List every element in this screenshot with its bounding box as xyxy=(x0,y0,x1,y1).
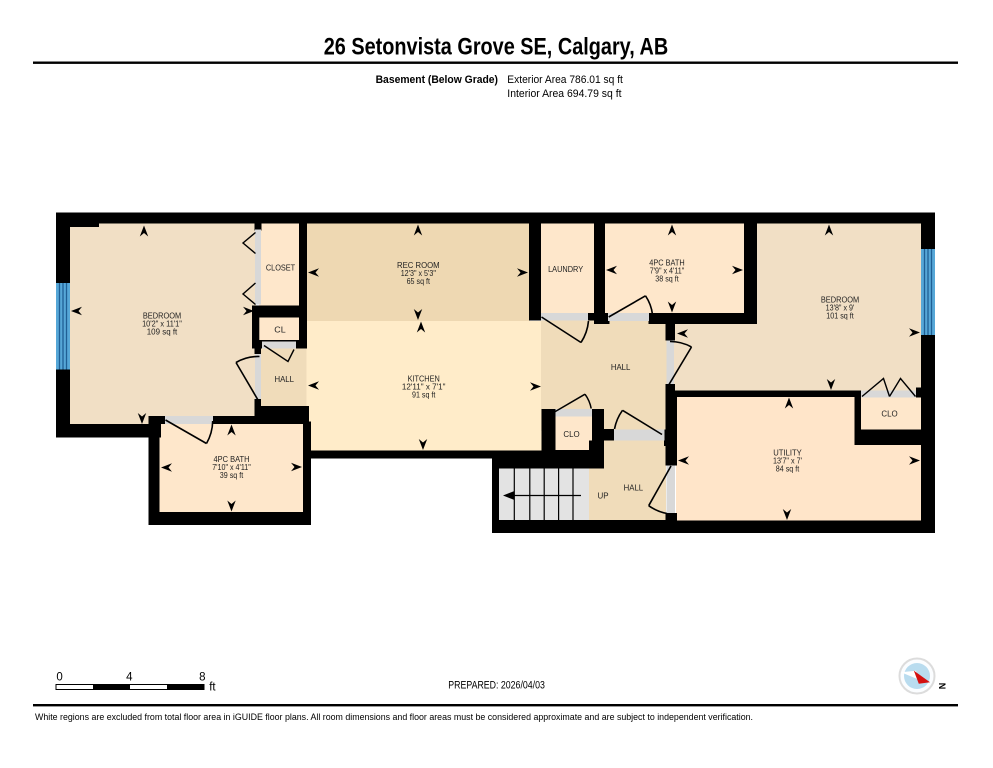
svg-text:CLOSET: CLOSET xyxy=(266,262,295,272)
svg-text:84 sq ft: 84 sq ft xyxy=(776,464,800,474)
svg-text:PREPARED: 2026/04/03: PREPARED: 2026/04/03 xyxy=(448,679,545,691)
svg-text:91 sq ft: 91 sq ft xyxy=(412,389,436,399)
svg-text:8: 8 xyxy=(199,672,205,684)
svg-text:26 Setonvista Grove SE, Calgar: 26 Setonvista Grove SE, Calgary, AB xyxy=(324,34,669,61)
svg-text:ft: ft xyxy=(209,682,216,694)
svg-text:65 sq ft: 65 sq ft xyxy=(407,276,431,286)
svg-text:101 sq ft: 101 sq ft xyxy=(826,311,854,321)
svg-text:109 sq ft: 109 sq ft xyxy=(147,326,178,336)
svg-text:CLO: CLO xyxy=(881,409,898,419)
svg-text:0: 0 xyxy=(56,672,62,684)
svg-text:Basement (Below Grade): Basement (Below Grade) xyxy=(376,74,499,86)
svg-text:HALL: HALL xyxy=(274,374,294,384)
svg-text:HALL: HALL xyxy=(624,483,644,493)
svg-text:Exterior Area 786.01 sq ft: Exterior Area 786.01 sq ft xyxy=(507,74,623,86)
svg-text:4: 4 xyxy=(126,672,133,684)
svg-text:CL: CL xyxy=(274,325,286,335)
svg-text:HALL: HALL xyxy=(611,362,631,372)
svg-text:White regions are excluded fro: White regions are excluded from total fl… xyxy=(35,712,753,722)
svg-text:39 sq ft: 39 sq ft xyxy=(220,470,244,480)
svg-text:CLO: CLO xyxy=(563,429,580,439)
svg-text:N: N xyxy=(937,683,947,690)
svg-text:LAUNDRY: LAUNDRY xyxy=(548,264,583,274)
svg-text:Interior Area 694.79 sq ft: Interior Area 694.79 sq ft xyxy=(507,88,621,100)
svg-text:UP: UP xyxy=(597,491,608,501)
svg-text:38 sq ft: 38 sq ft xyxy=(655,274,679,284)
